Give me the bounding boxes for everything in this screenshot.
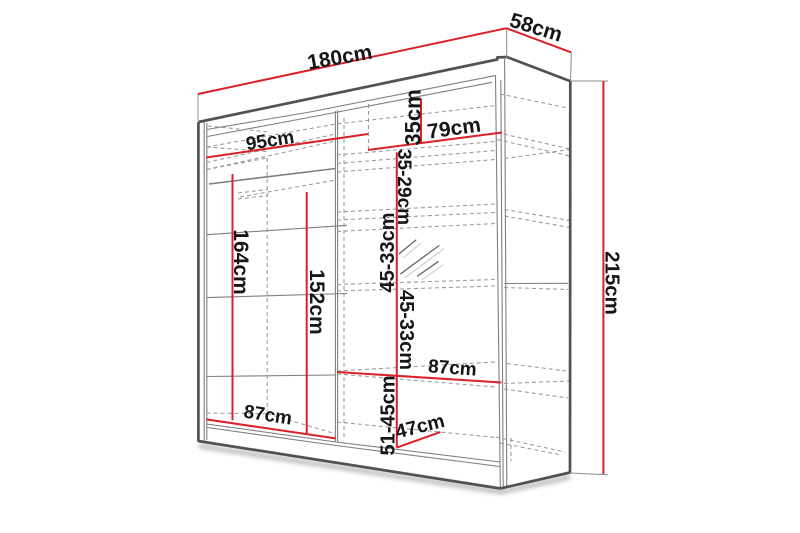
svg-text:35cm: 35cm <box>401 89 426 145</box>
svg-text:152cm: 152cm <box>305 269 328 334</box>
svg-text:95cm: 95cm <box>244 127 295 155</box>
svg-text:51-45cm: 51-45cm <box>378 375 400 455</box>
svg-text:215cm: 215cm <box>601 251 624 315</box>
svg-text:45-33cm: 45-33cm <box>377 212 399 292</box>
svg-text:45-33cm: 45-33cm <box>395 290 417 370</box>
svg-text:79cm: 79cm <box>426 113 482 143</box>
svg-text:87cm: 87cm <box>427 356 477 380</box>
svg-text:180cm: 180cm <box>306 41 374 75</box>
svg-text:58cm: 58cm <box>507 9 565 47</box>
svg-text:164cm: 164cm <box>229 229 252 294</box>
